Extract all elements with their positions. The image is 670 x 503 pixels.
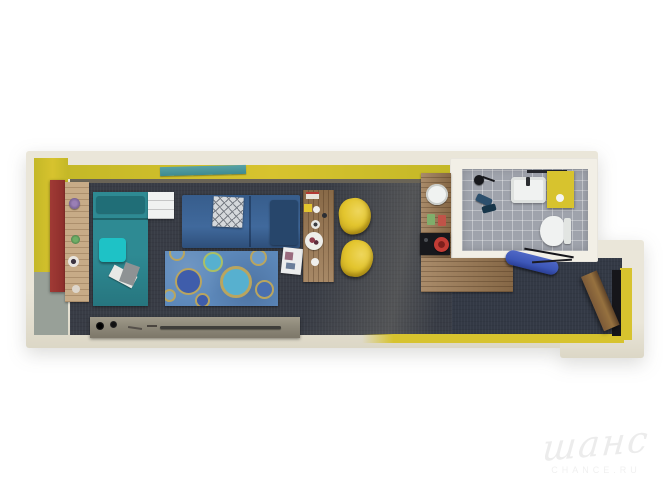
cooktop-knob <box>424 238 428 242</box>
rug-circle <box>203 252 223 272</box>
toilet <box>540 216 565 246</box>
watermark: шанс CHANCE.RU <box>536 424 656 475</box>
magazine-photo <box>286 263 296 270</box>
kitchen-item-green <box>427 214 435 225</box>
yellow-wall-top <box>58 165 450 179</box>
nightstand <box>148 192 174 219</box>
floorplan-render: шанс CHANCE.RU <box>0 0 670 503</box>
rug-circle <box>175 268 202 295</box>
table-cup-2 <box>311 258 319 266</box>
cabinet-soap-dish <box>556 194 564 202</box>
red-panel <box>50 180 65 292</box>
table-berry-plate <box>305 232 323 250</box>
table-cup <box>313 206 320 213</box>
rug-circle <box>220 266 252 298</box>
red-pot <box>434 237 449 252</box>
sideboard-handle <box>160 326 281 329</box>
yellow-wall-entry-right <box>620 268 632 340</box>
yellow-wall-bottom <box>362 334 624 343</box>
toilet-tank <box>564 218 571 244</box>
watermark-brand: шанс <box>534 419 657 471</box>
rug-circle <box>169 251 185 261</box>
speaker-knob <box>110 321 117 328</box>
speaker-knob <box>96 322 104 330</box>
table-dark-dish <box>322 213 327 218</box>
rug-circle <box>255 280 274 299</box>
magazine-photo <box>285 252 294 261</box>
bathroom-cabinet <box>547 171 574 208</box>
sofa-seat-divider <box>249 196 251 247</box>
rug-circle <box>165 289 176 302</box>
cyan-cushion <box>99 238 126 262</box>
magazine-on-floor <box>281 247 304 275</box>
bed-sheet-fold <box>93 218 148 220</box>
shelf-plant-purple <box>69 198 80 209</box>
shelf-bowl <box>68 256 79 267</box>
table-card <box>306 192 319 199</box>
rug-circle <box>250 251 267 266</box>
rug-circle <box>195 293 210 306</box>
sofa-navy-cushion <box>270 200 298 245</box>
bed-pillow <box>96 196 145 213</box>
sideboard-item <box>147 325 157 327</box>
table-yellow-note <box>304 204 312 212</box>
shelf-plant-green <box>71 235 80 244</box>
shelf-cup <box>72 285 80 293</box>
sofa-pattern-pillow <box>212 196 244 228</box>
kitchen-sink <box>426 184 448 205</box>
sink-faucet-icon <box>526 177 530 186</box>
kitchen-item-red <box>438 215 446 226</box>
kitchen-counter-horizontal <box>421 258 513 292</box>
table-small-plate <box>311 220 320 229</box>
area-rug <box>165 251 278 306</box>
